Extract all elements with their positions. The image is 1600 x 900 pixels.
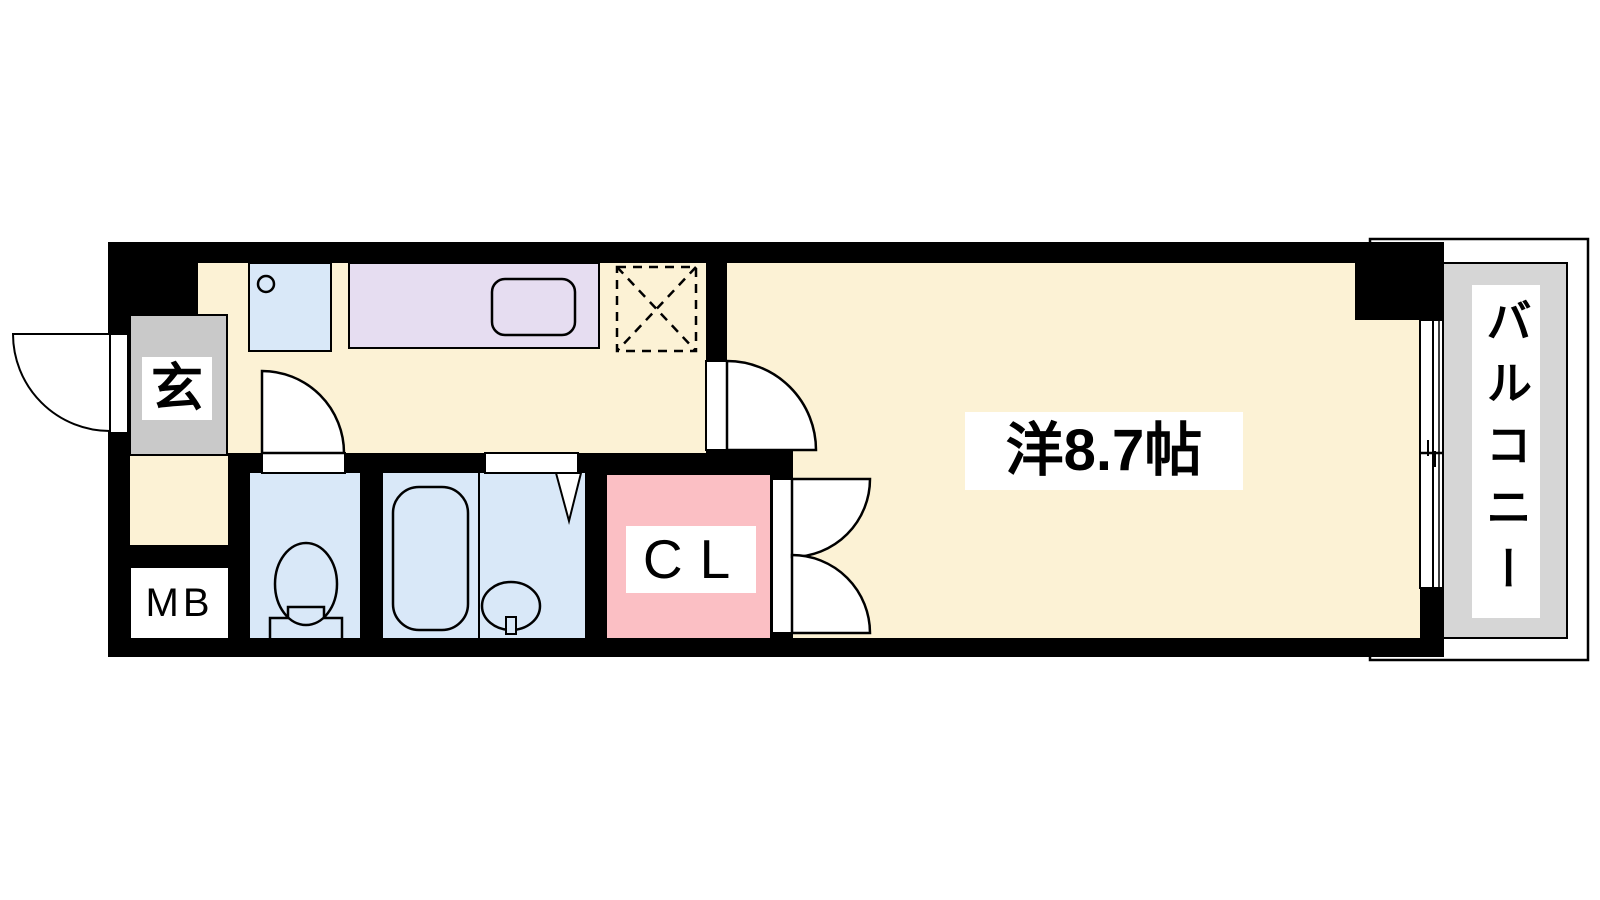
entrance-door-leaf: [110, 334, 128, 433]
entrance-label: 玄: [142, 357, 212, 420]
corner-wall-block: [1355, 242, 1444, 320]
meter-box-label: MB: [131, 568, 228, 638]
entrance-hallway-floor: [130, 455, 228, 545]
toilet-room-floor: [250, 473, 360, 638]
entrance-door-swing: [13, 334, 110, 431]
floor-plan-drawing: [0, 0, 1600, 900]
bathroom-door-opening: [485, 453, 578, 473]
balcony-label: バルコニー: [1472, 285, 1540, 618]
main-room-door-opening: [706, 361, 727, 450]
closet-label: CL: [626, 526, 756, 593]
balcony-sliding-window: [1420, 320, 1443, 588]
bathroom-faucet: [506, 617, 516, 634]
toilet-door-opening: [262, 453, 345, 473]
floor-plan: 玄 MB CL 洋8.7帖 バルコニー: [0, 0, 1600, 900]
closet-door-frame: [772, 479, 792, 633]
main-room-label: 洋8.7帖: [965, 412, 1243, 490]
